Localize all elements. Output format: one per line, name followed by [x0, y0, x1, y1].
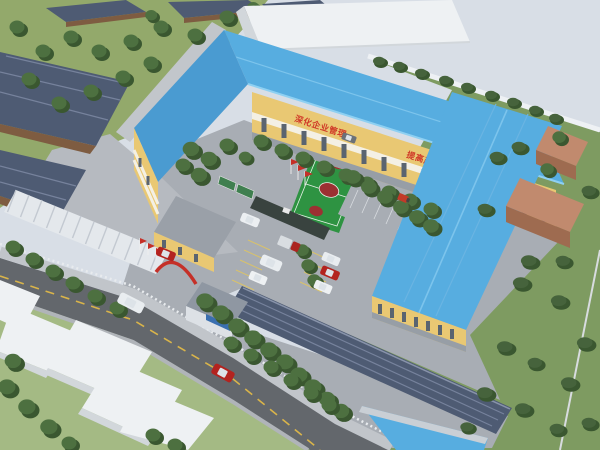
- factory-campus-illustration: 深化企业管理 提高产品质量: [0, 0, 600, 450]
- aerial-rendering: 深化企业管理 提高产品质量: [0, 0, 600, 450]
